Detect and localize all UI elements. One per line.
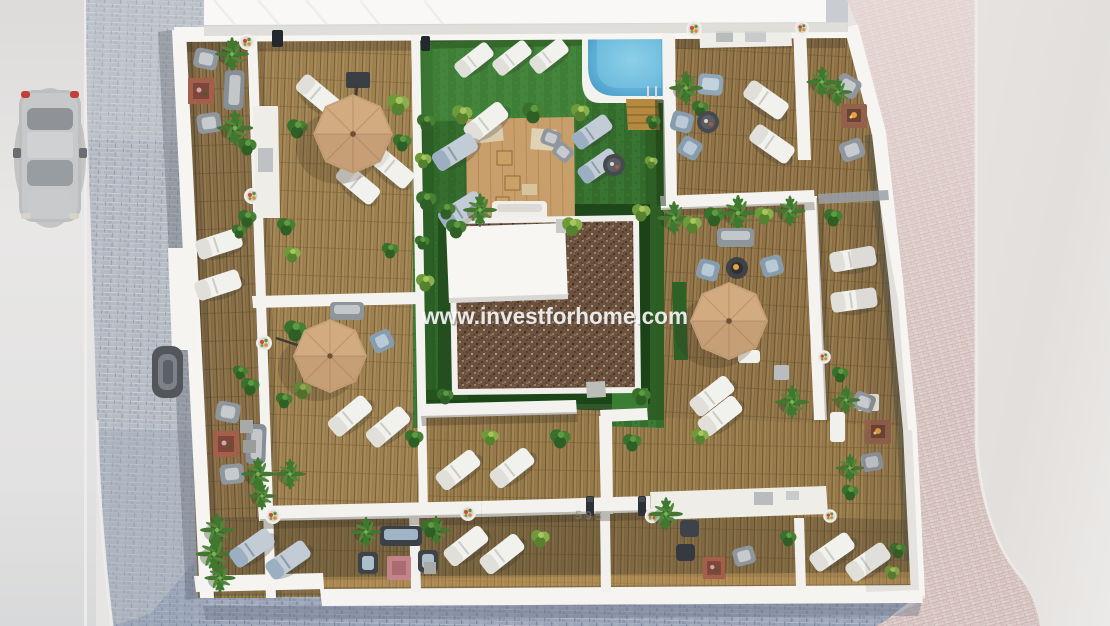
svg-text:www.investforhome.com: www.investforhome.com (421, 303, 688, 329)
svg-text:5 9 5: 5 9 5 (575, 508, 602, 523)
